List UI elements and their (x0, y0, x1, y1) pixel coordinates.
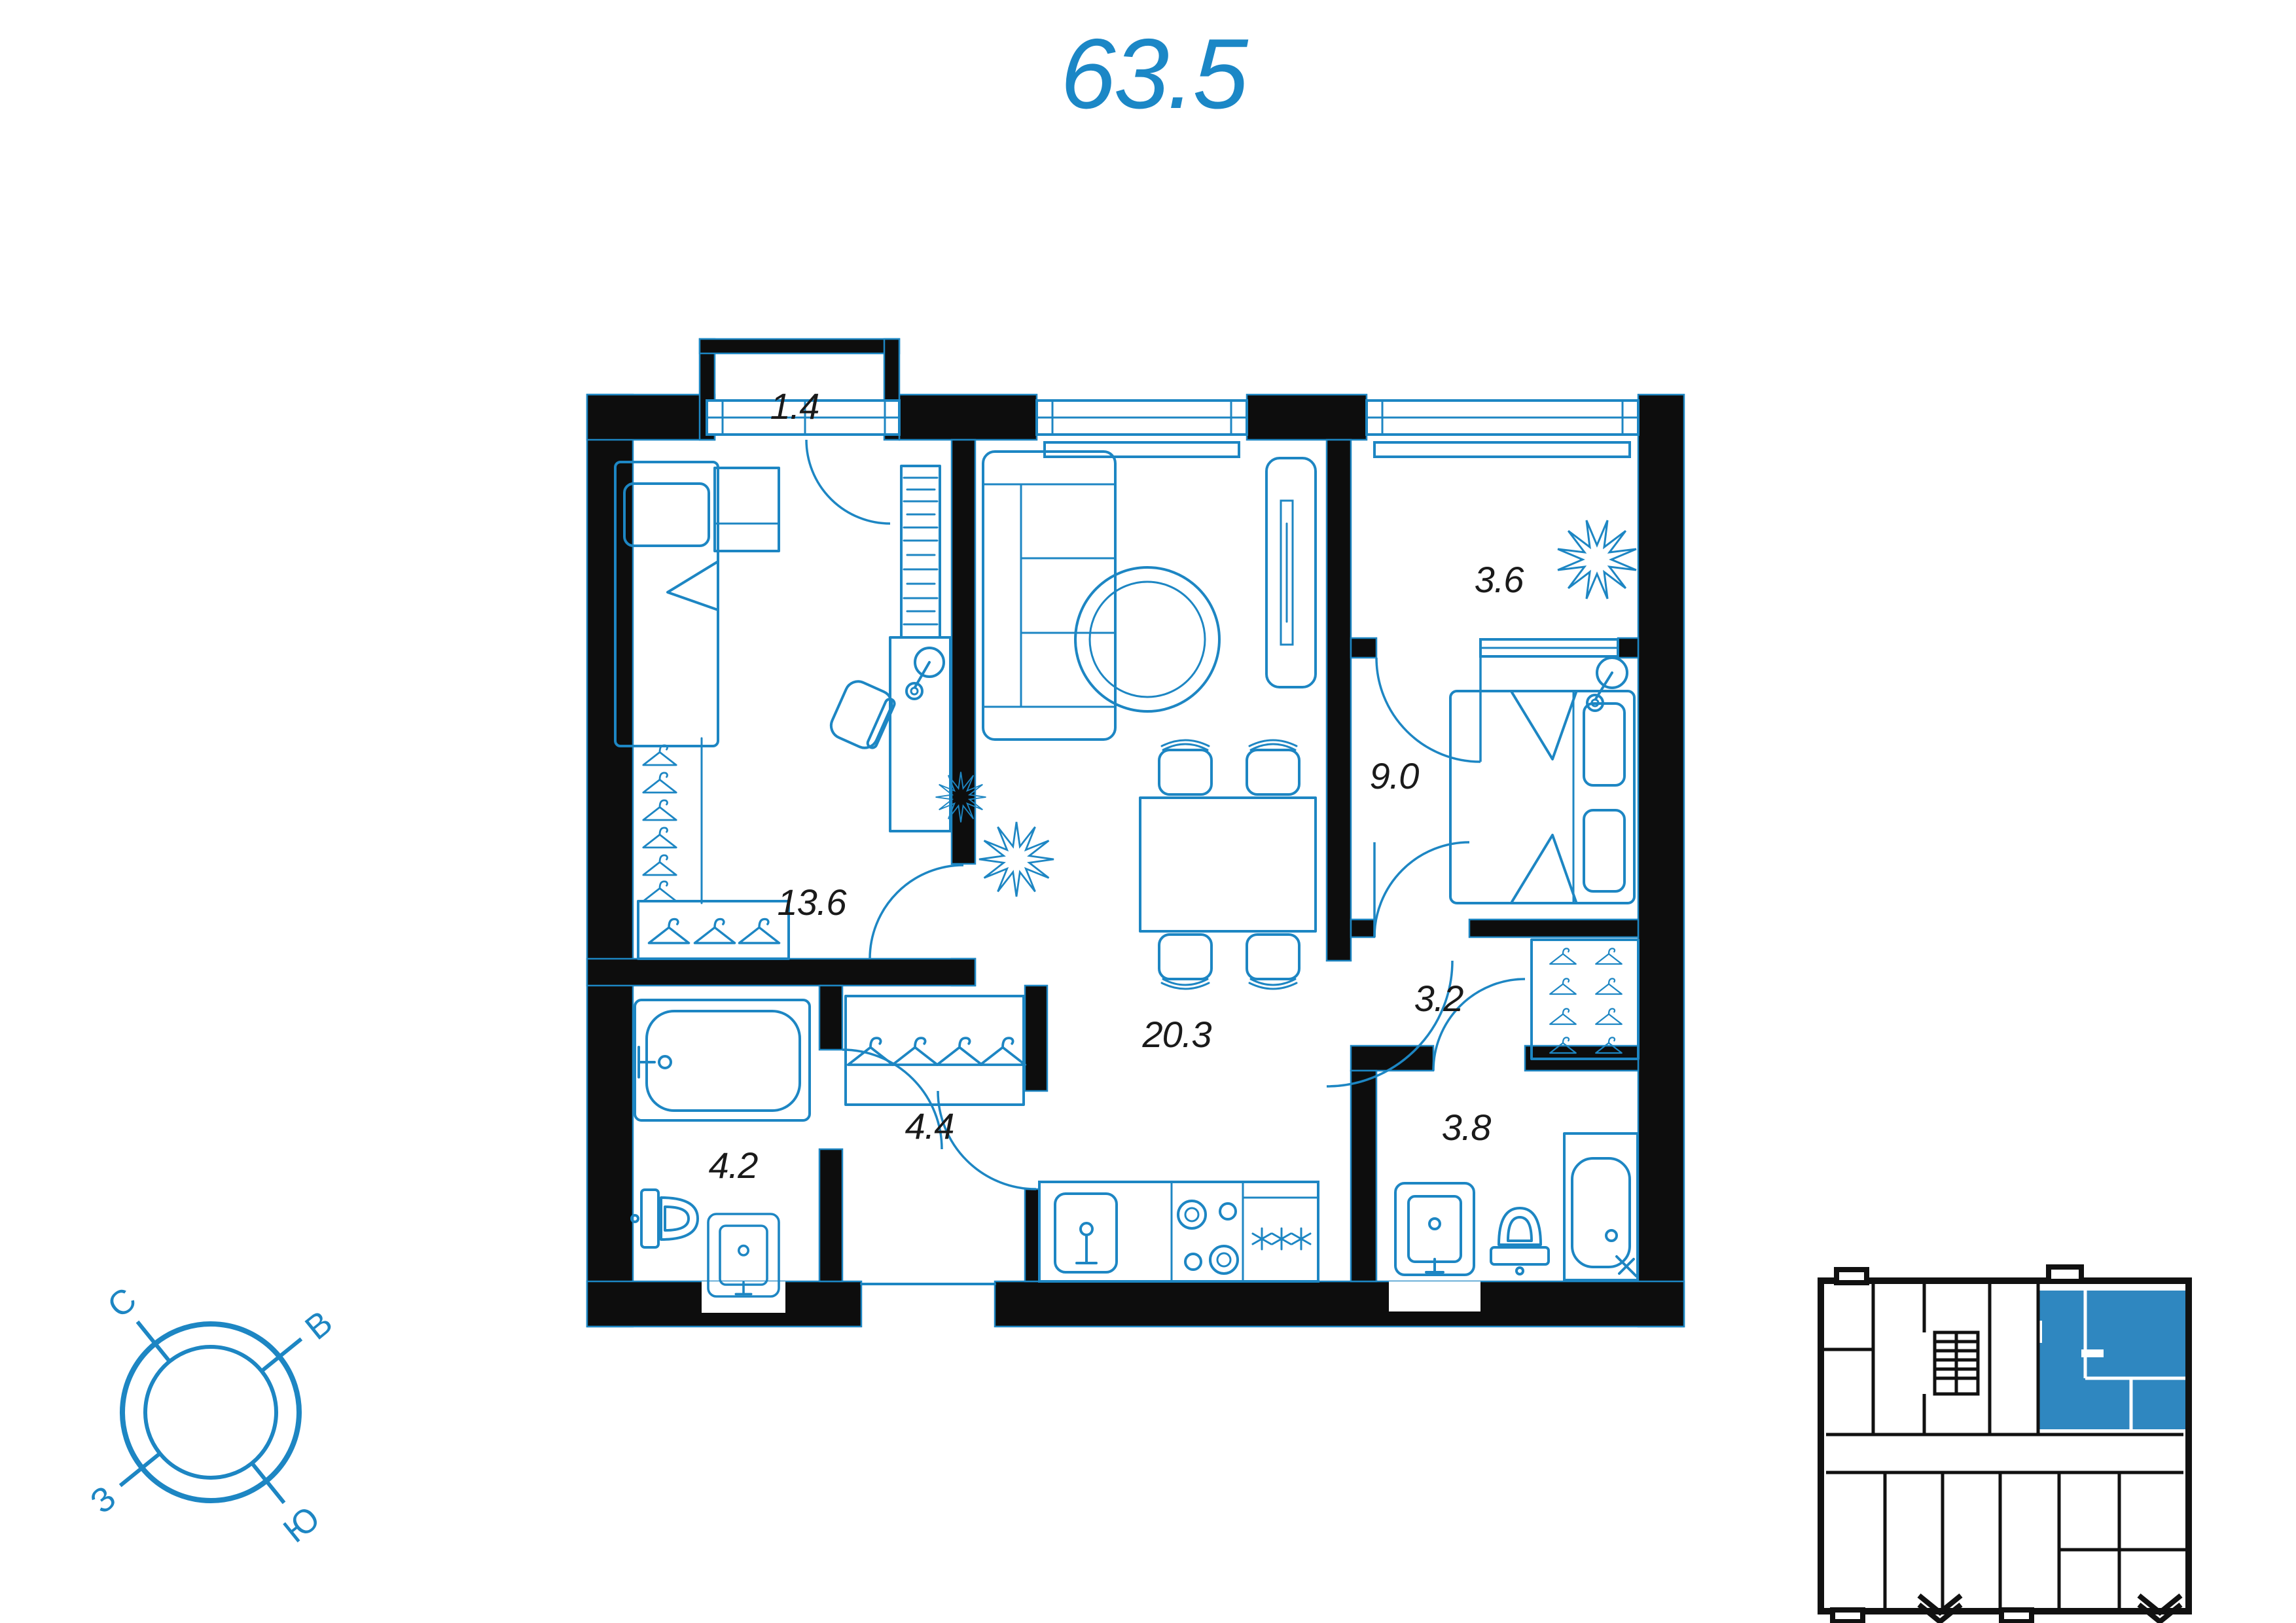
round-rug (1075, 567, 1219, 711)
hall-closet (1532, 940, 1638, 1059)
plant-loggia (1547, 510, 1647, 609)
bed-pillow (1584, 704, 1624, 785)
label-bedroom-main: 13.6 (778, 882, 848, 923)
doors (806, 440, 1525, 1189)
page-title: 63.5 (1060, 18, 1248, 130)
furniture-hallway (846, 996, 1025, 1105)
label-balcony: 1.4 (770, 385, 819, 427)
minimap-current-apartment (2038, 1291, 2185, 1429)
bed-pillow (624, 484, 709, 546)
label-bedroom-second: 9.0 (1370, 755, 1420, 796)
floor-plan-canvas: 63.5 (0, 0, 2296, 1623)
dining-chair (1159, 740, 1211, 794)
dining-table (1140, 798, 1316, 931)
label-bathroom: 4.2 (709, 1145, 759, 1186)
label-loggia: 3.6 (1475, 559, 1525, 600)
door-arc-balcony (806, 440, 890, 524)
toilet (632, 1190, 698, 1247)
label-shower-room: 3.8 (1442, 1107, 1492, 1148)
apartment-plan: 1.4 13.6 3.6 9.0 20.3 3.2 4.2 4.4 3.8 (587, 339, 1684, 1327)
door-arc-bedroom-second (1374, 842, 1469, 937)
door-arc-bedroom-main (870, 865, 963, 959)
compass-south: Ю (276, 1499, 327, 1550)
floor-plan-page: 63.5 (0, 0, 2296, 1623)
compass-west: З (83, 1479, 123, 1522)
dining-chair (1247, 935, 1299, 989)
label-living: 20.3 (1142, 1014, 1212, 1055)
furniture-loggia (1547, 510, 1647, 609)
double-bed (1450, 691, 1634, 903)
bedside-cabinet (715, 468, 779, 551)
furniture-hall-closet (1532, 940, 1638, 1059)
bed-pillow (1584, 810, 1624, 891)
compass-rose: С Ю В З (0, 1194, 431, 1623)
shower-room-toilet (1491, 1208, 1549, 1274)
desk (890, 637, 950, 831)
compass-north: С (101, 1281, 144, 1326)
minimap-balcony (2049, 1267, 2081, 1281)
desk-chair (827, 677, 897, 753)
furniture-bedroom-second (1450, 658, 1634, 903)
door-arc-loggia (1376, 658, 1480, 762)
minimap-balcony (1837, 1270, 1867, 1283)
sofa (983, 452, 1115, 740)
tv-stand (1266, 458, 1316, 687)
wardrobe-rail (638, 901, 789, 959)
furniture-living (979, 452, 1318, 1281)
plant-floor (979, 822, 1054, 897)
label-hall: 3.2 (1414, 978, 1464, 1019)
label-hallway: 4.4 (905, 1105, 954, 1147)
shower-room-sink (1395, 1183, 1474, 1275)
building-minimap (1821, 1267, 2189, 1622)
dining-chair (1159, 935, 1211, 989)
bathtub (635, 1000, 810, 1120)
compass-east: В (298, 1304, 340, 1347)
windows (707, 401, 1638, 1284)
dining-chair (1247, 740, 1299, 794)
